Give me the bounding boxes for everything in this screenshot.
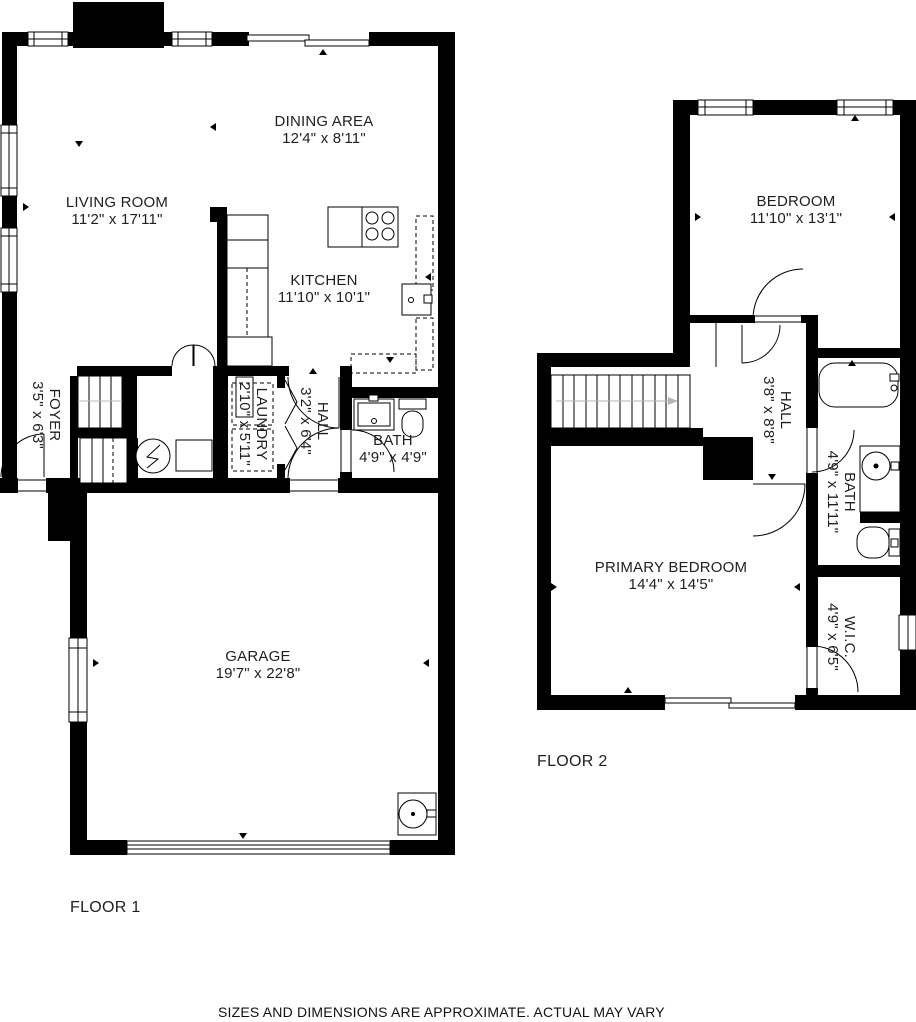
fireplace-icon [73, 2, 164, 48]
bath-sink-icon [354, 395, 394, 430]
room-name: BATH [359, 432, 427, 449]
kitchen-sink-icon [402, 284, 432, 315]
room-name: HALL [777, 376, 794, 444]
room-label-living-room: LIVING ROOM 11'2" x 17'11" [66, 194, 168, 228]
room-label-bedroom: BEDROOM 11'10" x 13'1" [750, 193, 842, 227]
room-label-primary-bedroom: PRIMARY BEDROOM 14'4" x 14'5" [595, 559, 747, 593]
room-dims: 3'2" x 6'4" [297, 387, 314, 455]
room-name: GARAGE [216, 648, 301, 665]
room-name: DINING AREA [275, 113, 374, 130]
room-name: FOYER [46, 381, 63, 449]
room-label-laundry: LAUNDRY 2'10" x 5'11" [236, 382, 270, 466]
room-name: W.I.C. [841, 603, 858, 671]
room-dims: 11'2" x 17'11" [66, 211, 168, 228]
room-dims: 4'9" x 6'5" [824, 603, 841, 671]
room-dims: 3'8" x 8'8" [760, 376, 777, 444]
room-dims: 4'9" x 4'9" [359, 449, 427, 466]
room-dims: 3'5" x 6'3" [29, 381, 46, 449]
sliding-door [247, 35, 369, 46]
room-name: LIVING ROOM [66, 194, 168, 211]
vanity-sink-icon [860, 446, 900, 512]
room-dims: 12'4" x 8'11" [275, 130, 374, 147]
floor2-plan [537, 100, 916, 710]
room-label-bath-floor1: BATH 4'9" x 4'9" [359, 432, 427, 466]
room-name: HALL [314, 387, 331, 455]
room-name: BEDROOM [750, 193, 842, 210]
window [172, 32, 212, 46]
room-name: BATH [841, 451, 858, 534]
appliance-icon [176, 440, 212, 471]
room-label-kitchen: KITCHEN 11'10" x 10'1" [278, 272, 370, 306]
sliding-door [665, 698, 795, 708]
bathtub-icon [819, 363, 899, 407]
room-name: KITCHEN [278, 272, 370, 289]
door-arc [753, 269, 803, 322]
window [1, 228, 17, 292]
room-dims: 11'10" x 10'1" [278, 289, 370, 306]
window [69, 638, 87, 722]
room-name: LAUNDRY [253, 382, 270, 466]
toilet-icon [857, 527, 900, 558]
bifold-door [172, 345, 215, 366]
window [698, 100, 753, 115]
room-label-dining-area: DINING AREA 12'4" x 8'11" [275, 113, 374, 147]
room-name: PRIMARY BEDROOM [595, 559, 747, 576]
water-heater-icon [136, 439, 170, 473]
closet [716, 323, 780, 367]
room-dims: 11'10" x 13'1" [750, 210, 842, 227]
window [837, 100, 893, 115]
floor1-plan [0, 2, 455, 855]
room-dims: 2'10" x 5'11" [236, 382, 253, 466]
room-label-hall-floor2: HALL 3'8" x 8'8" [760, 376, 794, 444]
room-dims: 14'4" x 14'5" [595, 576, 747, 593]
disclaimer-text: SIZES AND DIMENSIONS ARE APPROXIMATE. AC… [218, 1004, 665, 1020]
window [28, 32, 68, 46]
room-dims: 19'7" x 22'8" [216, 665, 301, 682]
room-label-hall-floor1: HALL 3'2" x 6'4" [297, 387, 331, 455]
garage-door [127, 841, 390, 854]
room-label-bath-floor2: BATH 4'9" x 11'11" [824, 451, 858, 534]
room-dims: 4'9" x 11'11" [824, 451, 841, 534]
floorplan-canvas [0, 0, 916, 1022]
floor2-title: FLOOR 2 [537, 753, 608, 771]
room-label-garage: GARAGE 19'7" x 22'8" [216, 648, 301, 682]
stove-icon [362, 207, 398, 247]
garage-heater-icon [398, 793, 436, 835]
room-label-wic: W.I.C. 4'9" x 6'5" [824, 603, 858, 671]
window [1, 125, 17, 196]
door-arc [753, 484, 805, 536]
floorplan-page: LIVING ROOM 11'2" x 17'11" DINING AREA 1… [0, 0, 916, 1022]
floor1-title: FLOOR 1 [70, 899, 141, 917]
room-label-foyer: FOYER 3'5" x 6'3" [29, 381, 63, 449]
window [899, 615, 916, 650]
stairs-icon [551, 375, 690, 428]
